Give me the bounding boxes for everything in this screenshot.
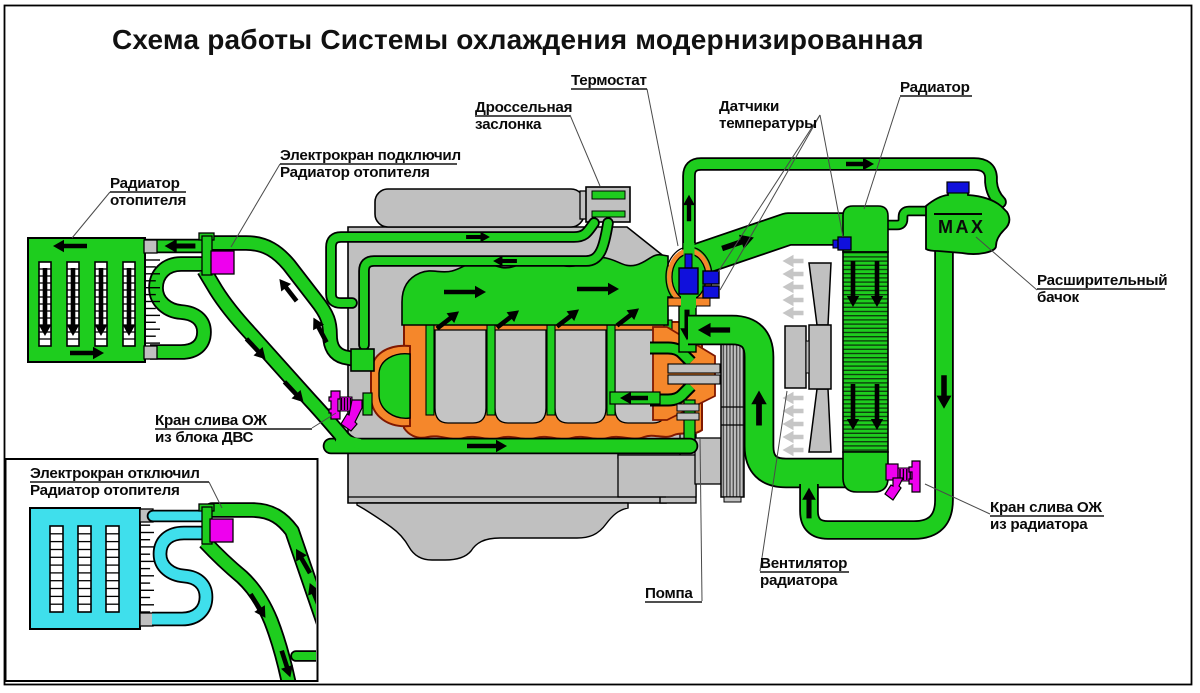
svg-text:Радиатор отопителя: Радиатор отопителя xyxy=(280,164,430,181)
svg-text:Расширительный: Расширительный xyxy=(1037,272,1167,289)
svg-text:Электрокран отключил: Электрокран отключил xyxy=(30,465,200,482)
svg-text:Вентилятор: Вентилятор xyxy=(760,555,847,572)
svg-text:отопителя: отопителя xyxy=(110,192,186,209)
svg-text:заслонка: заслонка xyxy=(475,116,542,133)
svg-text:Схема работы Системы охлаждени: Схема работы Системы охлаждения модерниз… xyxy=(112,24,924,55)
svg-text:Радиатор отопителя: Радиатор отопителя xyxy=(30,482,180,499)
svg-text:из блока ДВС: из блока ДВС xyxy=(155,429,254,446)
svg-text:температуры: температуры xyxy=(719,115,817,132)
svg-text:Термостат: Термостат xyxy=(571,72,647,89)
svg-text:Электрокран подключил: Электрокран подключил xyxy=(280,147,461,164)
svg-text:Радиатор: Радиатор xyxy=(110,175,180,192)
svg-text:Помпа: Помпа xyxy=(645,585,693,602)
svg-text:MAX: MAX xyxy=(938,217,986,237)
svg-text:Дроссельная: Дроссельная xyxy=(475,99,572,116)
svg-text:Радиатор: Радиатор xyxy=(900,79,970,96)
svg-text:бачок: бачок xyxy=(1037,289,1080,306)
svg-text:Кран слива ОЖ: Кран слива ОЖ xyxy=(155,412,267,429)
svg-text:радиатора: радиатора xyxy=(760,572,838,589)
svg-text:Кран слива ОЖ: Кран слива ОЖ xyxy=(990,499,1102,516)
svg-text:Датчики: Датчики xyxy=(719,98,779,115)
svg-text:из радиатора: из радиатора xyxy=(990,516,1088,533)
